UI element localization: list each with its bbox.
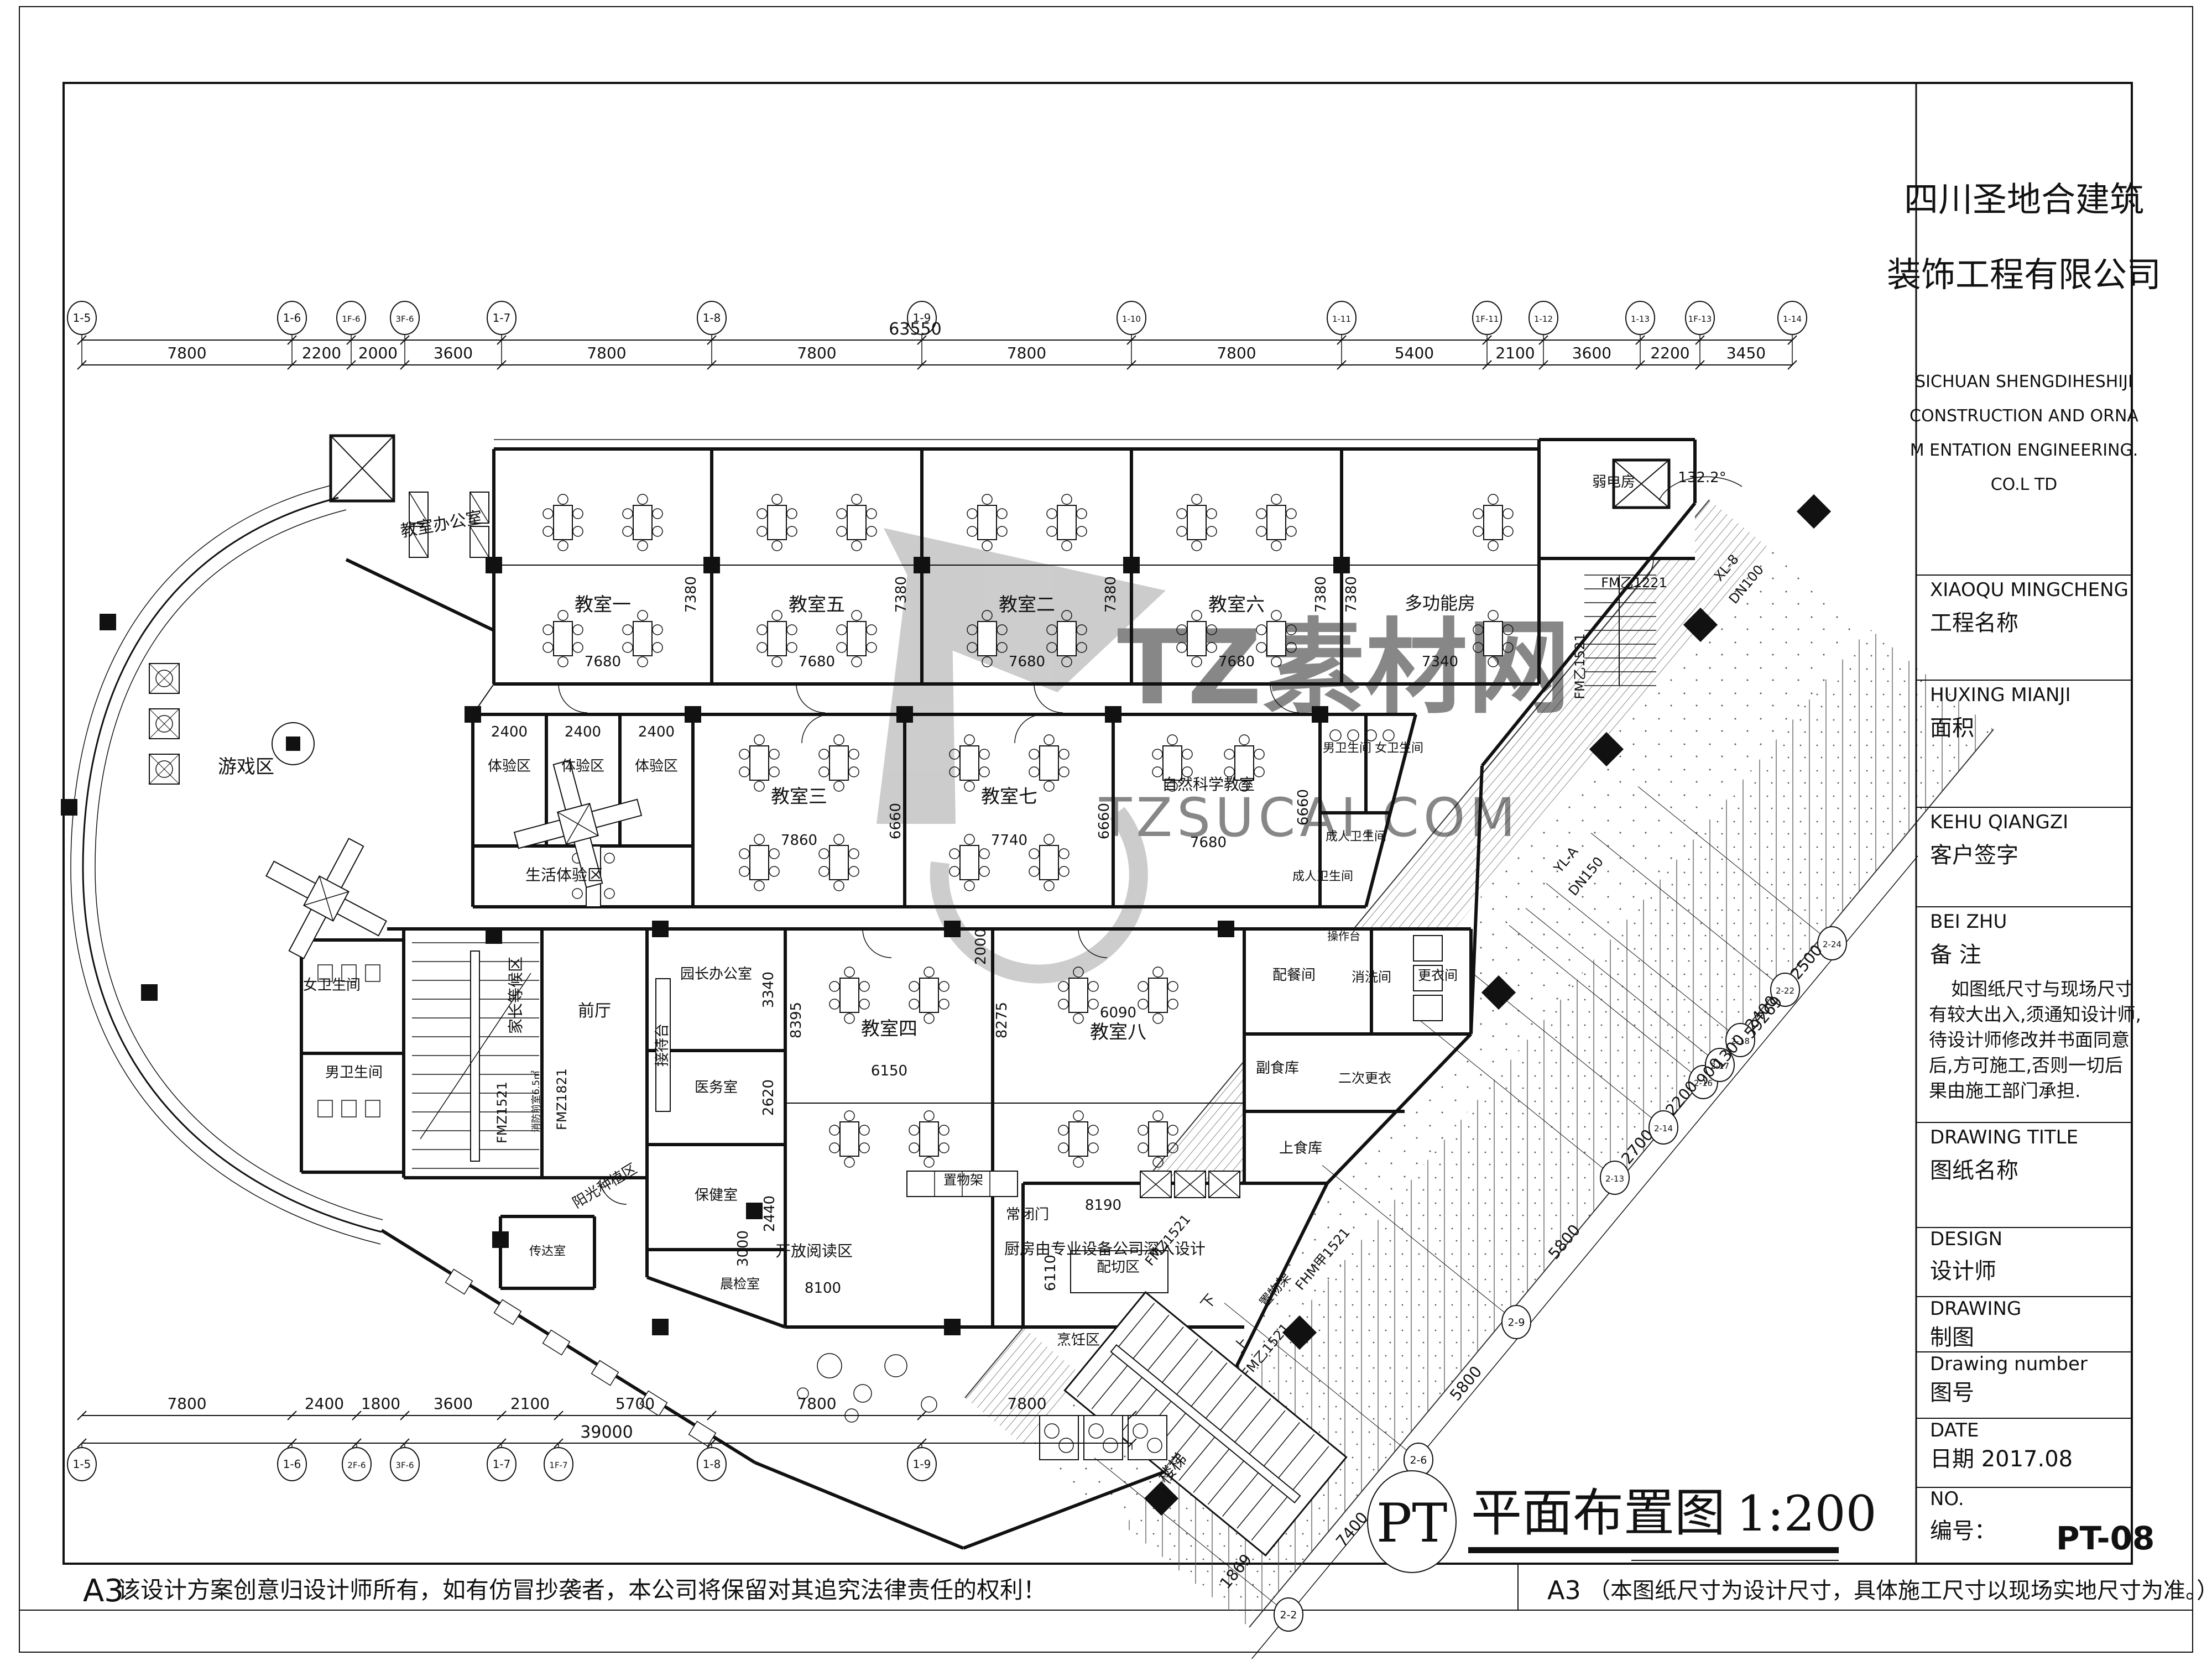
round-column-core	[286, 737, 300, 751]
dimension-text: 7740	[991, 832, 1027, 849]
stove	[1084, 1415, 1123, 1460]
room-label: 体验区	[561, 758, 604, 775]
dimension-text: 3340	[760, 971, 777, 1008]
room-label: 游戏区	[218, 756, 274, 778]
dimension-text: 5400	[1395, 344, 1434, 362]
grid-bubble-label: 1-7	[493, 311, 511, 325]
column	[100, 614, 116, 630]
field-label-en: XIAOQU MINGCHENG	[1930, 579, 2128, 601]
field-label-en: DATE	[1930, 1419, 1979, 1441]
dimension-text: 7380	[1343, 576, 1360, 613]
dimension-text: 2100	[510, 1394, 550, 1413]
dimension-text: 7340	[1422, 654, 1458, 670]
dimension-text: 7800	[167, 1394, 206, 1413]
remark-note-line: 如图纸尺寸与现场尺寸	[1951, 978, 2133, 1000]
dimension-text: 3600	[1572, 344, 1611, 362]
dimension-text: 7680	[1009, 654, 1045, 670]
room-label: 保健室	[695, 1187, 738, 1204]
annotation-text: 132.2°	[1678, 469, 1726, 486]
field-label-cn: 编号：	[1930, 1518, 1996, 1544]
grid-bubble-label: 2-9	[1507, 1317, 1525, 1329]
field-label-cn: 日期 2017.08	[1930, 1446, 2073, 1472]
room-label: 医务室	[695, 1079, 738, 1096]
dimension-text: 2000	[358, 344, 398, 362]
grid-bubble-label: 1-10	[1122, 314, 1141, 324]
room-label: 园长办公室	[680, 966, 752, 983]
grid-bubble-label: 1F-6	[342, 314, 360, 324]
grid-bubble-label: 1-5	[73, 311, 91, 325]
total-dimension: 39000	[580, 1423, 633, 1442]
plan-title-code: PT	[1376, 1492, 1448, 1554]
grid-bubble-label: 3F-6	[395, 314, 414, 324]
room-label: 接待台	[654, 1023, 671, 1067]
room-label: 教室六	[1208, 594, 1265, 616]
total-dimension: 63550	[889, 320, 941, 339]
dimension-text: 7680	[799, 654, 835, 670]
dimension-text: 8100	[805, 1280, 841, 1297]
sink	[1413, 995, 1442, 1021]
grid-bubble-label: 2F-6	[347, 1460, 366, 1470]
annotation-text: FMZ1521	[494, 1082, 510, 1143]
grid-bubble-label: 1F-11	[1475, 314, 1499, 324]
dimension-text: 7680	[1190, 834, 1227, 851]
dimension-text: 2400	[638, 724, 675, 740]
company-name-en: M ENTATION ENGINEERING.	[1910, 441, 2138, 460]
grid-bubble-label: 1-12	[1534, 314, 1553, 324]
field-label-en: NO.	[1930, 1488, 1964, 1510]
field-label-cn: 制图	[1930, 1325, 1974, 1350]
drawing-sheet: TZ素材网 TZSUCAI.COM 1-51-61F-63F-61-71-81-…	[0, 0, 2212, 1661]
stair-rail	[471, 951, 479, 1161]
room-label: 男卫生间	[1323, 741, 1371, 755]
room-label: 家长等候区	[507, 957, 525, 1034]
field-label-en: Drawing number	[1930, 1353, 2088, 1375]
stove	[1128, 1415, 1167, 1460]
annotation-text: FM乙1521	[1572, 633, 1588, 699]
dimension-text: 6660	[888, 803, 904, 839]
footer-right-note: （本图纸尺寸为设计尺寸，具体施工尺寸以现场实地尺寸为准。）	[1588, 1578, 2212, 1603]
room-label: 配餐间	[1272, 967, 1316, 984]
dimension-text: 8395	[788, 1002, 805, 1038]
dimension-text: 7380	[893, 576, 910, 613]
room-label: 传达室	[529, 1245, 566, 1258]
room-label: 置物架	[943, 1172, 983, 1188]
dimension-text: 2200	[1650, 344, 1689, 362]
dimension-text: 8190	[1085, 1197, 1121, 1214]
room-label: 教室八	[1090, 1021, 1146, 1043]
grid-bubble-label: 1-8	[703, 311, 721, 325]
remark-note-line: 后,方可施工,否则一切后	[1929, 1054, 2123, 1076]
grid-bubble-label: 2-6	[1410, 1454, 1427, 1466]
field-label-cn: 面积	[1930, 715, 1974, 741]
dimension-text: 7800	[1007, 1394, 1046, 1413]
grid-bubble-label: 1-11	[1332, 314, 1351, 324]
column	[652, 1319, 669, 1335]
column	[944, 1319, 961, 1335]
field-label-en: HUXING MIANJI	[1930, 684, 2070, 706]
drawing-number-value: PT-08	[2056, 1519, 2154, 1557]
room-label: 晨检室	[720, 1276, 760, 1292]
remark-note-line: 果由施工部门承担.	[1929, 1080, 2081, 1101]
dimension-text: 3600	[434, 1394, 473, 1413]
grid-bubble-label: 2-24	[1823, 939, 1841, 949]
room-label: 教室一	[575, 594, 631, 616]
column	[61, 799, 77, 816]
floor-plan-canvas: TZ素材网 TZSUCAI.COM 1-51-61F-63F-61-71-81-…	[0, 0, 2212, 1659]
field-label-en: BEI ZHU	[1930, 911, 2007, 933]
grid-bubble-label: 1-14	[1783, 314, 1802, 324]
dimension-text: 5700	[615, 1394, 655, 1413]
dimension-text: 1800	[361, 1394, 400, 1413]
column	[944, 921, 961, 937]
annotation-text: 常闭门	[1006, 1206, 1049, 1223]
field-label-en: DRAWING	[1930, 1298, 2021, 1320]
column	[1333, 557, 1350, 573]
room-label: 教室四	[861, 1018, 917, 1040]
column	[685, 706, 701, 723]
dimension-text: 2100	[1495, 344, 1535, 362]
room-label: 自然科学教室	[1162, 775, 1255, 793]
room-label: 上食库	[1279, 1140, 1322, 1157]
field-label-cn: 工程名称	[1930, 610, 2018, 636]
footer-right-a3: A3	[1547, 1575, 1581, 1605]
dimension-text: 3000	[735, 1230, 752, 1267]
room-label: 二次更衣	[1338, 1070, 1391, 1086]
remark-note-line: 有较大出入,须通知设计师,	[1929, 1004, 2141, 1025]
plan-title-scale: 1:200	[1736, 1485, 1877, 1542]
dimension-text: 6660	[1096, 803, 1113, 839]
field-label-cn: 图号	[1930, 1380, 1974, 1406]
remark-note-line: 待设计师修改并书面同意	[1929, 1029, 2130, 1051]
dimension-text: 6660	[1295, 789, 1312, 826]
annotation-text: FM乙1221	[1601, 575, 1667, 591]
room-label: 教室五	[789, 594, 845, 616]
field-label-en: DESIGN	[1930, 1228, 2002, 1250]
room-label: 弱电房	[1592, 474, 1635, 490]
room-label: 前厅	[578, 1001, 611, 1021]
dimension-text: 7800	[587, 344, 626, 362]
room-label: 男卫生间	[325, 1064, 383, 1081]
grid-bubble-label: 2-2	[1280, 1609, 1297, 1621]
field-label-cn: 图纸名称	[1930, 1158, 2018, 1183]
grid-bubble-label: 1-7	[493, 1458, 511, 1471]
annotation-text: 厨房由专业设备公司深入设计	[1004, 1240, 1206, 1258]
dimension-text: 3450	[1726, 344, 1766, 362]
grid-bubble-label: 2-13	[1605, 1174, 1624, 1184]
column	[1218, 921, 1234, 937]
field-label-cn: 设计师	[1930, 1258, 1996, 1284]
grid-bubble-label: 1F-13	[1688, 314, 1712, 324]
field-label-cn: 客户签字	[1930, 843, 2018, 868]
plan-title-text: 平面布置图	[1471, 1484, 1725, 1543]
room-label: 开放阅读区	[775, 1242, 853, 1260]
column	[914, 557, 930, 573]
room-label: 教室三	[771, 786, 827, 808]
room-label: 教室二	[999, 594, 1055, 616]
dimension-text: 7800	[1007, 344, 1046, 362]
room-label: 操作台	[1327, 929, 1360, 943]
field-label-en: KEHU QIANGZI	[1930, 811, 2068, 833]
annotation-text: 消防前室6.5㎡	[531, 1070, 542, 1132]
grid-bubble-label: 3F-6	[395, 1460, 414, 1470]
dimension-text: 7860	[781, 832, 817, 849]
column	[492, 1231, 509, 1248]
column	[896, 706, 913, 723]
field-label-en: DRAWING TITLE	[1930, 1126, 2078, 1148]
dimension-text: 6150	[871, 1063, 907, 1079]
grid-bubble-label: 2-22	[1776, 986, 1794, 996]
grid-bubble-label: 1-9	[913, 1458, 931, 1471]
dimension-text: 7800	[797, 344, 836, 362]
column	[1312, 706, 1328, 723]
room-label: 教室七	[981, 786, 1037, 808]
grid-bubble-label: 1-6	[283, 311, 301, 325]
dimension-text: 7800	[797, 1394, 836, 1413]
company-name-cn2: 装饰工程有限公司	[1887, 254, 2161, 295]
column	[1105, 706, 1121, 723]
room-label: 更衣间	[1418, 968, 1458, 983]
company-name-en: SICHUAN SHENGDIHESHIJI	[1915, 372, 2133, 391]
company-name-en: CONSTRUCTION AND ORNA	[1910, 406, 2138, 426]
column	[703, 557, 720, 573]
column	[652, 921, 669, 937]
room-label: 成人卫生间	[1292, 870, 1353, 884]
dimension-text: 2000	[973, 928, 989, 965]
dimension-text: 2400	[305, 1394, 344, 1413]
annotation-text: FMZ1821	[554, 1068, 570, 1130]
stove	[1040, 1415, 1078, 1460]
room-label: 烹饪区	[1057, 1332, 1100, 1349]
dimension-text: 7680	[1218, 654, 1255, 670]
dimension-text: 2440	[761, 1195, 778, 1232]
room-label: 副食库	[1256, 1060, 1299, 1077]
sink	[1413, 936, 1442, 961]
column	[486, 927, 502, 944]
room-label: 消洗间	[1352, 969, 1391, 985]
column	[486, 557, 502, 573]
dimension-text: 6110	[1042, 1255, 1059, 1291]
grid-bubble-label: 1F-7	[549, 1460, 567, 1470]
dimension-text: 3600	[434, 344, 473, 362]
room-label: 多功能房	[1405, 593, 1475, 614]
dimension-text: 7380	[683, 576, 700, 613]
room-label: 体验区	[635, 758, 678, 775]
room-label: 体验区	[488, 758, 531, 775]
column	[746, 1203, 763, 1219]
company-name-cn1: 四川圣地合建筑	[1904, 179, 2144, 220]
column	[465, 706, 481, 723]
column	[141, 984, 158, 1001]
room-label: 成人卫生间	[1326, 830, 1386, 844]
dimension-text: 7800	[1217, 344, 1256, 362]
dimension-text: 2620	[760, 1079, 777, 1116]
room-label: 生活体验区	[525, 866, 603, 884]
room-label: 女卫生间	[303, 977, 361, 994]
company-name-en: CO.L TD	[1991, 475, 2058, 494]
dimension-text: 2200	[302, 344, 341, 362]
grid-bubble-label: 2-14	[1654, 1124, 1673, 1134]
grid-bubble-label: 1-6	[283, 1458, 301, 1471]
grid-bubble-label: 1-8	[703, 1458, 721, 1471]
dimension-text: 7800	[167, 344, 206, 362]
grid-bubble-label: 1-13	[1631, 314, 1650, 324]
dimension-text: 2400	[565, 724, 601, 740]
room-label: 女卫生间	[1375, 741, 1423, 755]
dimension-text: 7380	[1103, 576, 1119, 613]
room-label: 配切区	[1097, 1259, 1140, 1276]
dimension-text: 7680	[585, 654, 621, 670]
dimension-text: 2400	[491, 724, 528, 740]
grid-bubble-label: 1-5	[73, 1458, 91, 1471]
dimension-text: 7380	[1313, 576, 1329, 613]
field-label-cn: 备 注	[1930, 942, 1981, 968]
column	[1123, 557, 1140, 573]
footer-left-disclaimer: 该设计方案创意归设计师所有，如有仿冒抄袭者，本公司将保留对其追究法律责任的权利！	[117, 1576, 1046, 1603]
dimension-text: 6090	[1100, 1005, 1136, 1021]
dimension-text: 8275	[994, 1002, 1010, 1038]
